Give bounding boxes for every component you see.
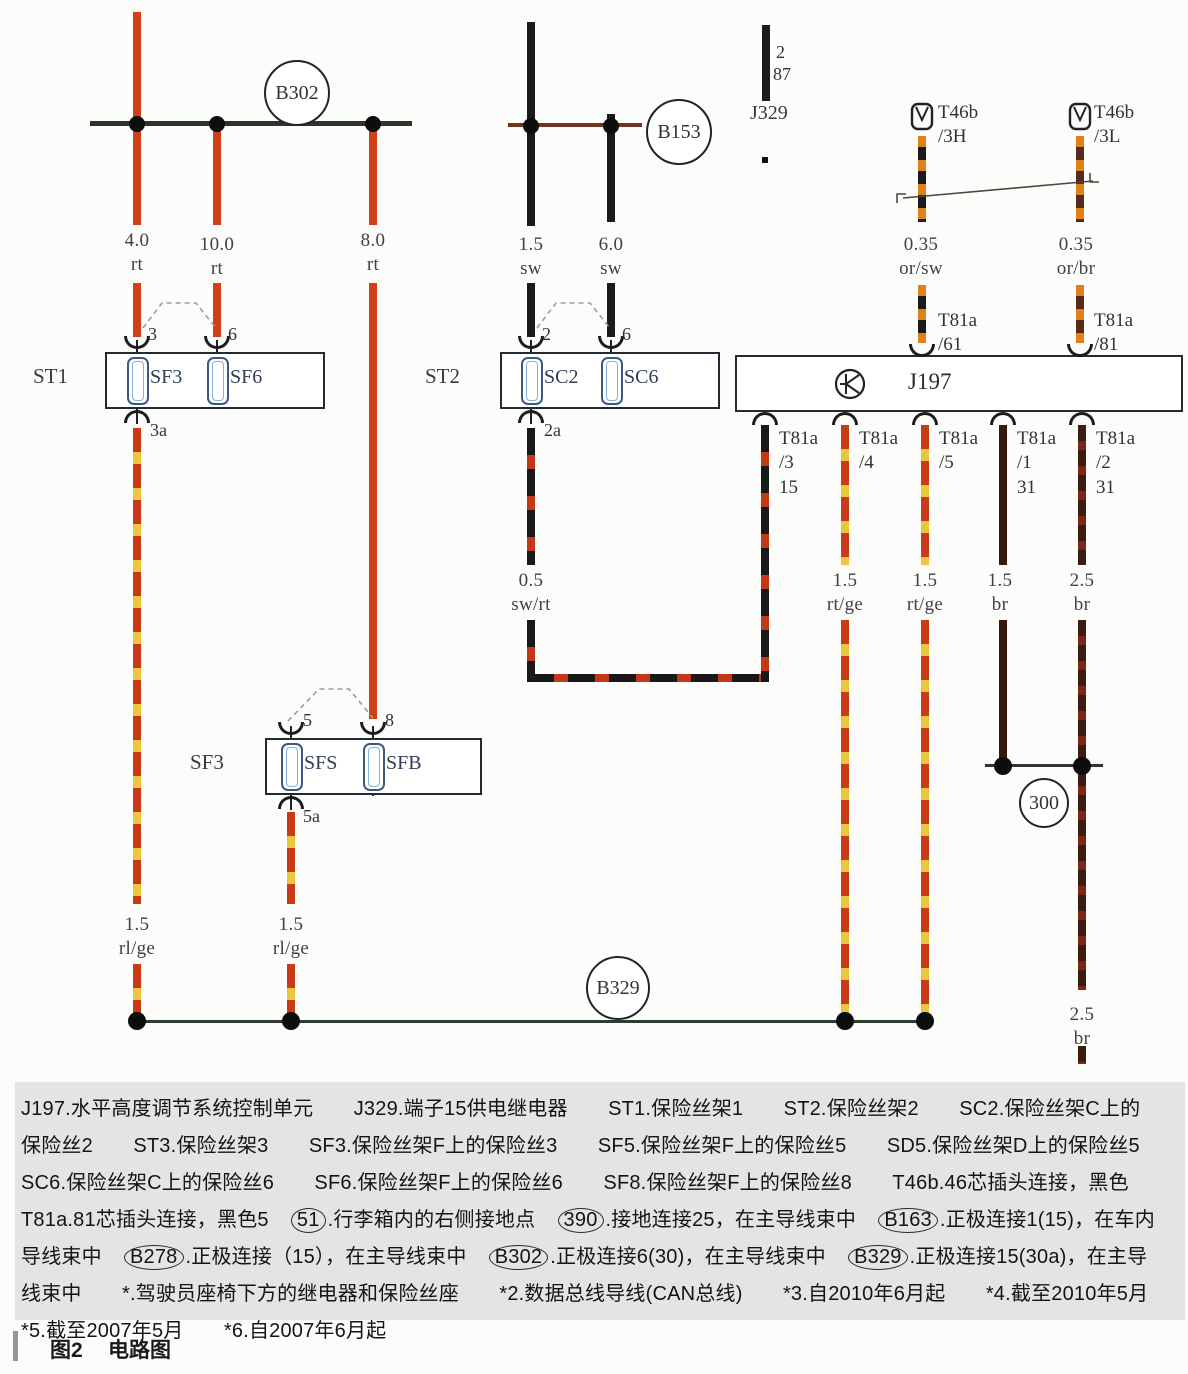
wire-br-2-5 [1078,620,1086,990]
connector-cup [752,412,778,425]
wire-color-code: or/sw [886,258,956,280]
t81a-5-name: T81a [939,428,978,450]
j197-box [735,355,1183,412]
legend-circled-ref: 390 [558,1208,604,1233]
legend-line: SC6.保险丝架C上的保险丝6 SF6.保险丝架F上的保险丝6 SF8.保险丝架… [21,1165,1181,1202]
junction-dot [128,1012,146,1030]
sf3-box-label: SF3 [190,750,224,775]
wire-color-code: rl/ge [256,938,326,960]
legend-circled-ref: B163 [878,1208,938,1233]
t81a-2-terminal: 31 [1096,477,1115,499]
fuse-sf3-label: SF3 [150,366,182,389]
wire-size: 6.0 [576,234,646,256]
junction-dot [836,1012,854,1030]
st2-pin-out: 2a [544,420,561,441]
wire-rt-ge [841,425,849,565]
wire-size: 2.5 [1047,570,1117,592]
junction-dot [1073,757,1091,775]
wire-rt-ge [921,425,929,565]
t81a-81-pin: /81 [1094,334,1118,356]
junction-dot [916,1012,934,1030]
legend-circled-ref: 51 [291,1208,326,1233]
wire-size: 0.35 [886,234,956,256]
t81a-5-pin: /5 [939,452,954,474]
b153-label: B153 [657,121,700,144]
wire-size: 0.5 [496,570,566,592]
legend-circled-ref: B302 [489,1245,549,1270]
wire-rl-ge [133,428,141,904]
wire-br [999,620,1007,766]
t81a-1-terminal: 31 [1017,477,1036,499]
t81a-3-terminal: 15 [779,477,798,499]
connector-cup [912,412,938,425]
connection-b302: B302 [264,60,330,126]
caption-bar [13,1331,18,1361]
sf3-pin1: 5 [303,710,312,731]
junction-dot [523,118,539,134]
j329-contact-bar [762,25,770,101]
wire-rt-ge [841,620,849,1022]
connector-cup [598,336,624,349]
wire-color-code: rt [102,254,172,276]
fuse-symbol [521,357,543,405]
wire-sw-rt [761,425,769,682]
connector-cup [124,410,150,423]
connector-cup [518,336,544,349]
wire-size: 1.5 [256,914,326,936]
fuse-sc2-label: SC2 [544,366,578,389]
connector-cup [278,722,304,735]
legend-line: J197.水平高度调节系统控制单元 J329.端子15供电继电器 ST1.保险丝… [21,1091,1181,1128]
t81a-4-pin: /4 [859,452,874,474]
j329-label: J329 [750,102,788,125]
connection-b153: B153 [646,99,712,165]
wire-8-0-rt [369,283,377,719]
wire-color-code: br [965,594,1035,616]
connector-cup [360,722,386,735]
j329-pin: 2 [776,42,785,63]
legend-circled-ref: B278 [124,1245,184,1270]
wire-br-2-5 [1078,1046,1086,1064]
junction-dot [994,757,1012,775]
connector-cup [124,336,150,349]
j329-terminal: 87 [773,64,791,85]
t81a-1-name: T81a [1017,428,1056,450]
st1-pin-out: 3a [150,420,167,441]
wire-or-br [1076,285,1084,343]
wire-or-sw [918,285,926,343]
j329-dot [762,157,768,163]
legend-line: T81a.81芯插头连接，黑色5 51.行李箱内的右侧接地点 390.接地连接2… [21,1202,1181,1239]
st1-label: ST1 [33,364,68,389]
wire-size: 4.0 [102,230,172,252]
wire-color-code: br [1047,594,1117,616]
wire-color-code: sw [576,258,646,280]
junction-dot [603,118,619,134]
wire-color-code: or/br [1041,258,1111,280]
t46b-left-pin: /3H [938,126,967,148]
wire-rt-ge [921,620,929,1022]
legend-panel: J197.水平高度调节系统控制单元 J329.端子15供电继电器 ST1.保险丝… [15,1082,1185,1320]
t46b-connector-icon [1067,101,1093,135]
wire-br [999,425,1007,565]
t81a-81-name: T81a [1094,310,1133,332]
t81a-3-pin: /3 [779,452,794,474]
st2-pin1: 2 [542,324,551,345]
fuse-symbol [207,357,229,405]
junction-dot [365,116,381,132]
st1-pin1: 3 [148,324,157,345]
fuse-symbol [601,357,623,405]
fuse-symbol [127,357,149,405]
caption-figure-number: 图2 [50,1334,83,1364]
wire-color-code: rl/ge [102,938,172,960]
t81a-2-pin: /2 [1096,452,1111,474]
legend-circled-ref: B329 [848,1245,908,1270]
t46b-connector-icon [909,101,935,135]
fuse-sf6-label: SF6 [230,366,262,389]
wire-color-code: sw/rt [496,594,566,616]
fuse-sfb-label: SFB [386,752,422,775]
legend-line: 导线束中 B278.正极连接（15），在主导线束中 B302.正极连接6(30)… [21,1239,1181,1276]
wire-size: 10.0 [182,234,252,256]
wire-size: 1.5 [890,570,960,592]
b329-label: B329 [596,977,639,1000]
caption-title: 电路图 [108,1334,171,1364]
j197-label: J197 [908,369,951,395]
connector-cup [518,410,544,423]
fuse-symbol [363,743,385,791]
connection-b329: B329 [586,956,650,1020]
wire-color-code: rt [182,258,252,280]
wire-br-2-5 [1078,425,1086,565]
wire-color-code: rt [338,254,408,276]
junction-dot [209,116,225,132]
wire-color-code: sw [496,258,566,280]
connector-cup [278,796,304,809]
sf3-pin-out: 5a [303,806,320,827]
t81a-1-pin: /1 [1017,452,1032,474]
ground-300-label: 300 [1029,792,1059,815]
t46b-left-name: T46b [938,102,978,124]
connector-cup [1069,412,1095,425]
t46b-right-pin: /3L [1094,126,1120,148]
wire-sw-rt-horizontal [527,674,769,682]
t81a-4-name: T81a [859,428,898,450]
fuse-sfs-label: SFS [304,752,337,775]
legend-lines: J197.水平高度调节系统控制单元 J329.端子15供电继电器 ST1.保险丝… [21,1091,1181,1350]
legend-line: 线束中 *.驾驶员座椅下方的继电器和保险丝座 *2.数据总线导线(CAN总线) … [21,1276,1181,1313]
junction-dot [282,1012,300,1030]
connector-cup [832,412,858,425]
wire-sw-rt [527,620,535,682]
legend-line: *5.截至2007年5月 *6.自2007年6月起 [21,1313,1181,1350]
wire-color-code: rt/ge [890,594,960,616]
t81a-2-name: T81a [1096,428,1135,450]
t81a-3-name: T81a [779,428,818,450]
wire-size: 1.5 [810,570,880,592]
ground-connection-300: 300 [1019,778,1069,828]
t81a-61-name: T81a [938,310,977,332]
fuse-sc6-label: SC6 [624,366,658,389]
connector-cup [204,336,230,349]
can-twist-line [893,170,1107,206]
interrupt-hint-dashes [284,682,378,724]
wire-sw-rt [527,428,535,565]
sf3-pin2: 8 [385,710,394,731]
wire-size: 0.35 [1041,234,1111,256]
st2-label: ST2 [425,364,460,389]
wire-8-0-rt [369,125,377,225]
t81a-61-pin: /61 [938,334,962,356]
relay-symbol-icon [832,366,868,402]
wire-size: 1.5 [102,914,172,936]
junction-dot [129,116,145,132]
wire-size: 1.5 [496,234,566,256]
wire-color-code: rt/ge [810,594,880,616]
t46b-right-name: T46b [1094,102,1134,124]
wire-size: 1.5 [965,570,1035,592]
st2-pin2: 6 [622,324,631,345]
connector-cup [990,412,1016,425]
wire-10-0-rt [213,125,221,225]
wire-rl-ge [287,812,295,904]
st1-pin2: 6 [228,324,237,345]
bus-b329 [131,1020,931,1023]
wiring-diagram-page: B302 4.0 rt 10.0 rt 8.0 rt B153 1.5 sw 6… [0,0,1188,1374]
fuse-symbol [281,743,303,791]
wire-size: 2.5 [1047,1004,1117,1026]
legend-line: 保险丝2 ST3.保险丝架3 SF3.保险丝架F上的保险丝3 SF5.保险丝架F… [21,1128,1181,1165]
wire-size: 8.0 [338,230,408,252]
b302-label: B302 [275,82,318,105]
